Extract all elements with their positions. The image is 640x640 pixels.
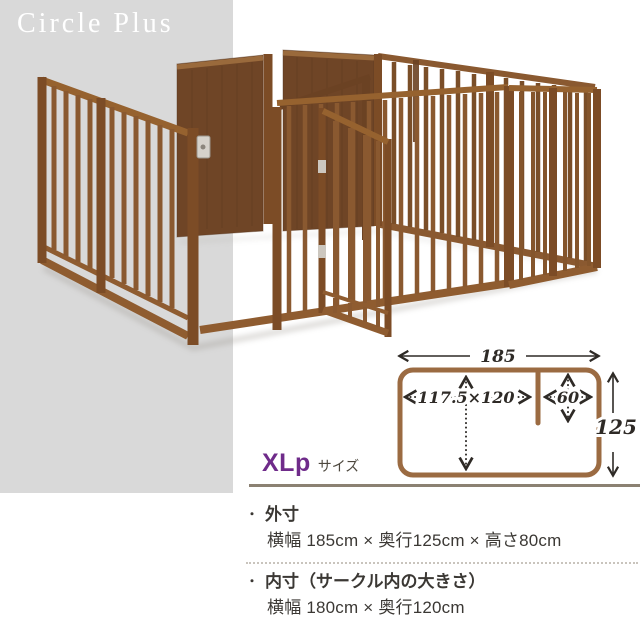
right-inner-label: 60 [557,388,579,407]
outer-size-detail: 横幅 185cm × 奥行125cm × 高さ80cm [246,530,638,552]
size-label-row: XLp サイズ [262,449,359,478]
left-wall [42,77,188,336]
dimension-diagram: 185 125 117.5×120 60 [385,340,640,482]
door-hinge [318,160,326,173]
pen-outline [400,370,599,475]
dotted-divider [246,562,638,564]
bullet-icon: ・ [246,507,258,523]
left-inner-label: 117.5×120 [418,388,515,407]
outer-width-label: 185 [480,347,516,367]
product-detail-image: Circle Plus [0,0,640,640]
outer-size-heading-row: ・ 外寸 [246,504,638,526]
separator-line [249,484,640,487]
bullet-icon: ・ [246,574,258,590]
inner-size-heading-row: ・ 内寸（サークル内の大きさ） [246,571,638,593]
outer-size-heading: 外寸 [265,504,299,526]
spec-list: ・ 外寸 横幅 185cm × 奥行125cm × 高さ80cm ・ 内寸（サー… [246,497,638,619]
door-hinge [318,245,326,258]
size-code: XLp [262,449,311,478]
depth-label: 125 [595,415,637,439]
inner-size-heading: 内寸（サークル内の大きさ） [265,571,486,593]
inner-size-detail: 横幅 180cm × 奥行120cm [246,597,638,619]
size-suffix: サイズ [318,456,360,476]
